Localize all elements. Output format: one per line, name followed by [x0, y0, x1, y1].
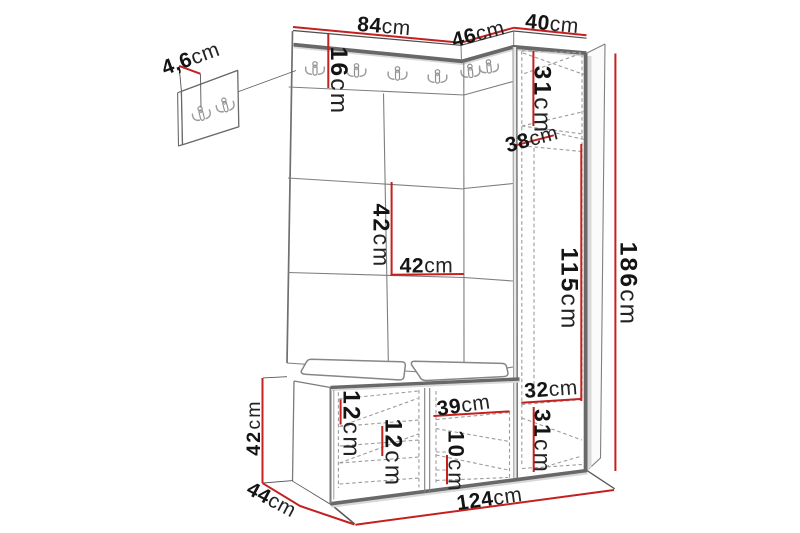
svg-text:42cm: 42cm — [400, 255, 454, 278]
svg-text:84cm: 84cm — [356, 13, 412, 40]
svg-text:16cm: 16cm — [325, 47, 352, 116]
svg-text:115cm: 115cm — [556, 247, 583, 330]
svg-text:42cm: 42cm — [243, 399, 265, 456]
svg-text:12cm: 12cm — [338, 390, 365, 459]
svg-text:42cm: 42cm — [369, 203, 395, 268]
svg-text:31cm: 31cm — [529, 66, 556, 135]
svg-text:10cm: 10cm — [444, 430, 469, 493]
svg-text:12cm: 12cm — [380, 419, 407, 488]
svg-text:32cm: 32cm — [523, 376, 578, 403]
svg-text:31cm: 31cm — [530, 409, 556, 474]
svg-text:186cm: 186cm — [615, 242, 642, 327]
